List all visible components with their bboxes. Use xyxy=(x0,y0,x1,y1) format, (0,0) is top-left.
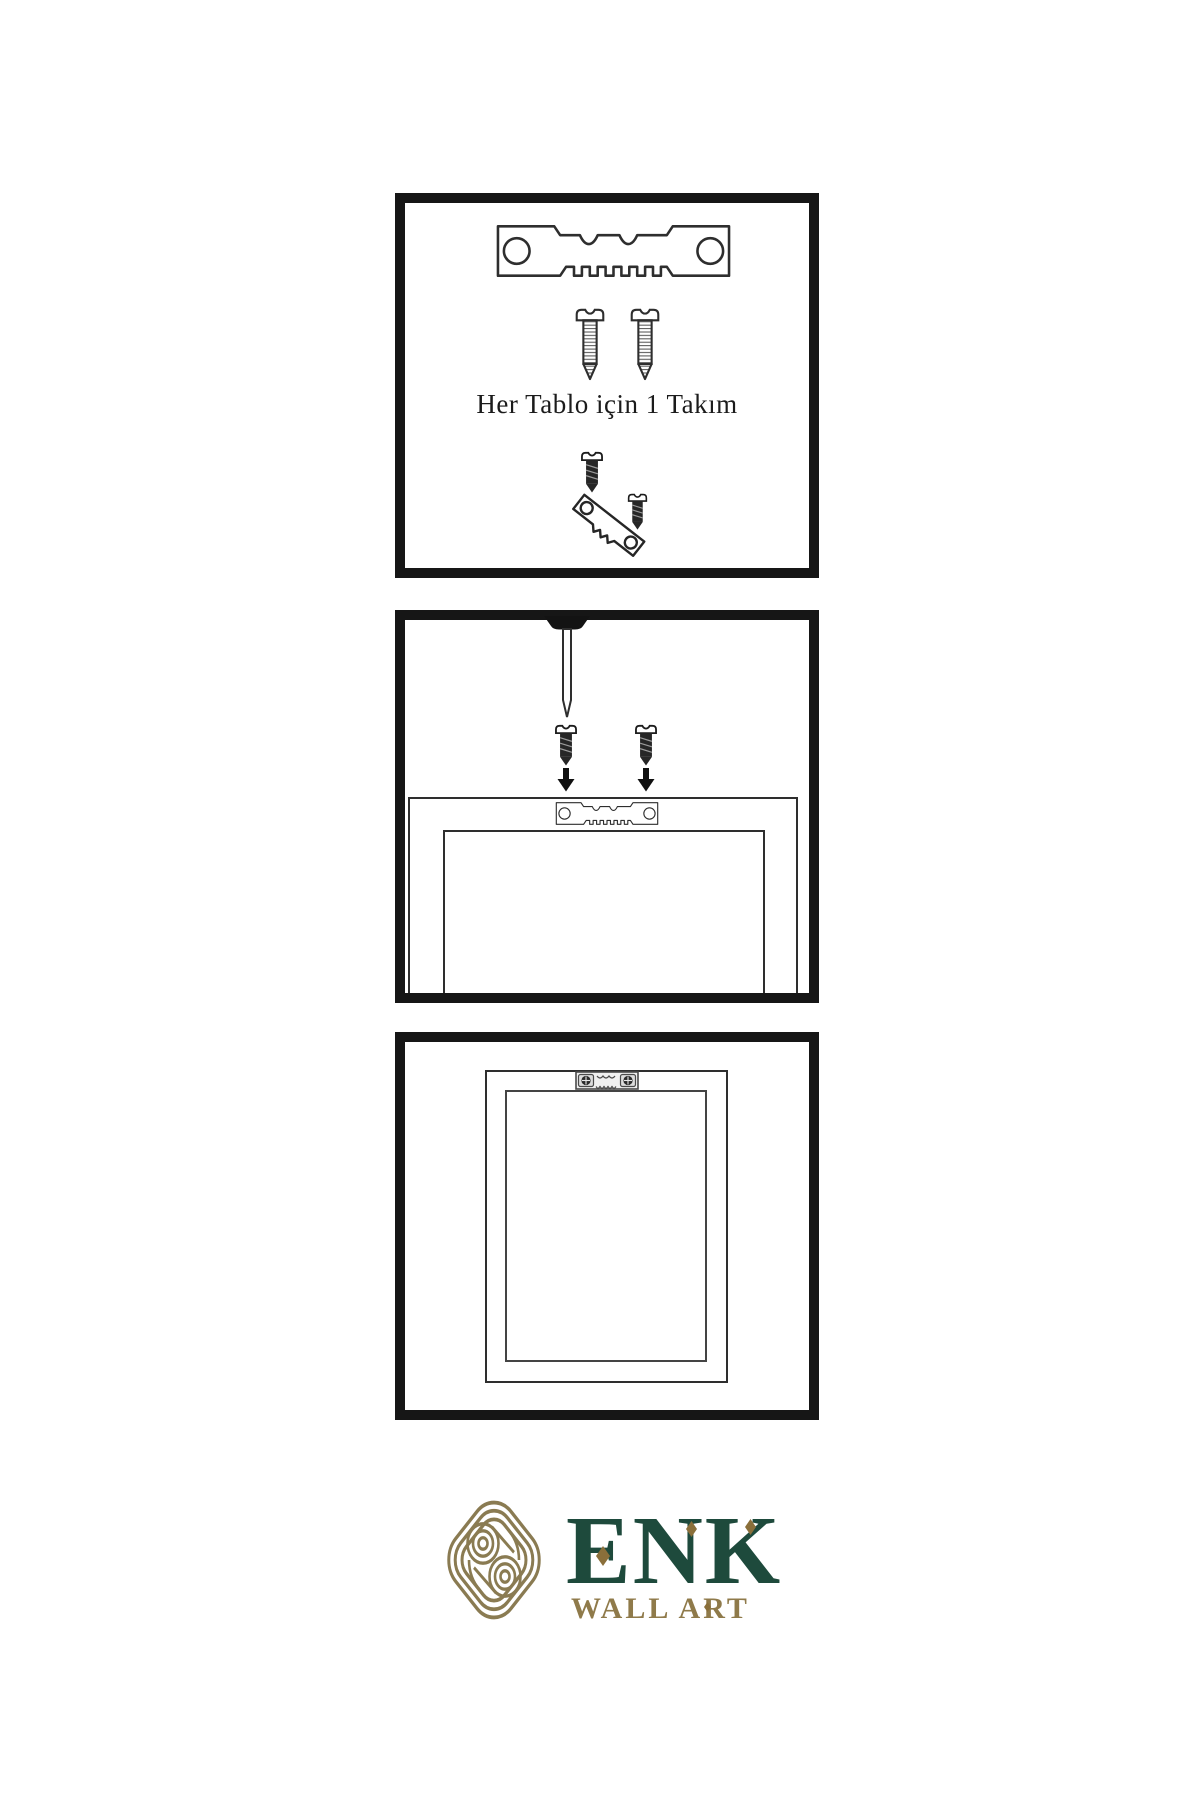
dark-screw-icon xyxy=(554,724,578,766)
hanger-assembly-icon xyxy=(575,451,665,551)
step-2-panel xyxy=(395,610,819,1003)
frame-front-inner-outline xyxy=(505,1090,707,1362)
frame-back-inner-outline xyxy=(443,830,765,993)
brand-subtitle: WALL ART xyxy=(571,1592,750,1626)
screw-icon xyxy=(627,307,663,381)
step-1-panel: Her Tablo için 1 Takım xyxy=(395,193,819,578)
dark-screw-icon xyxy=(634,724,658,766)
screw-icon xyxy=(572,307,608,381)
step-1-caption: Her Tablo için 1 Takım xyxy=(405,389,809,420)
sawtooth-hanger-icon xyxy=(555,801,659,826)
step-3-panel xyxy=(395,1032,819,1420)
dark-screw-icon xyxy=(629,495,647,530)
mounted-sawtooth-hanger-icon xyxy=(575,1071,639,1090)
dark-screw-icon xyxy=(582,453,602,493)
arrow-down-icon xyxy=(636,768,656,792)
brand-wordmark: ENK xyxy=(566,1502,782,1599)
arrow-down-icon xyxy=(556,768,576,792)
wall-nail-icon xyxy=(543,616,591,720)
interlocked-knot-icon xyxy=(436,1486,552,1634)
sawtooth-hanger-icon xyxy=(495,223,732,279)
